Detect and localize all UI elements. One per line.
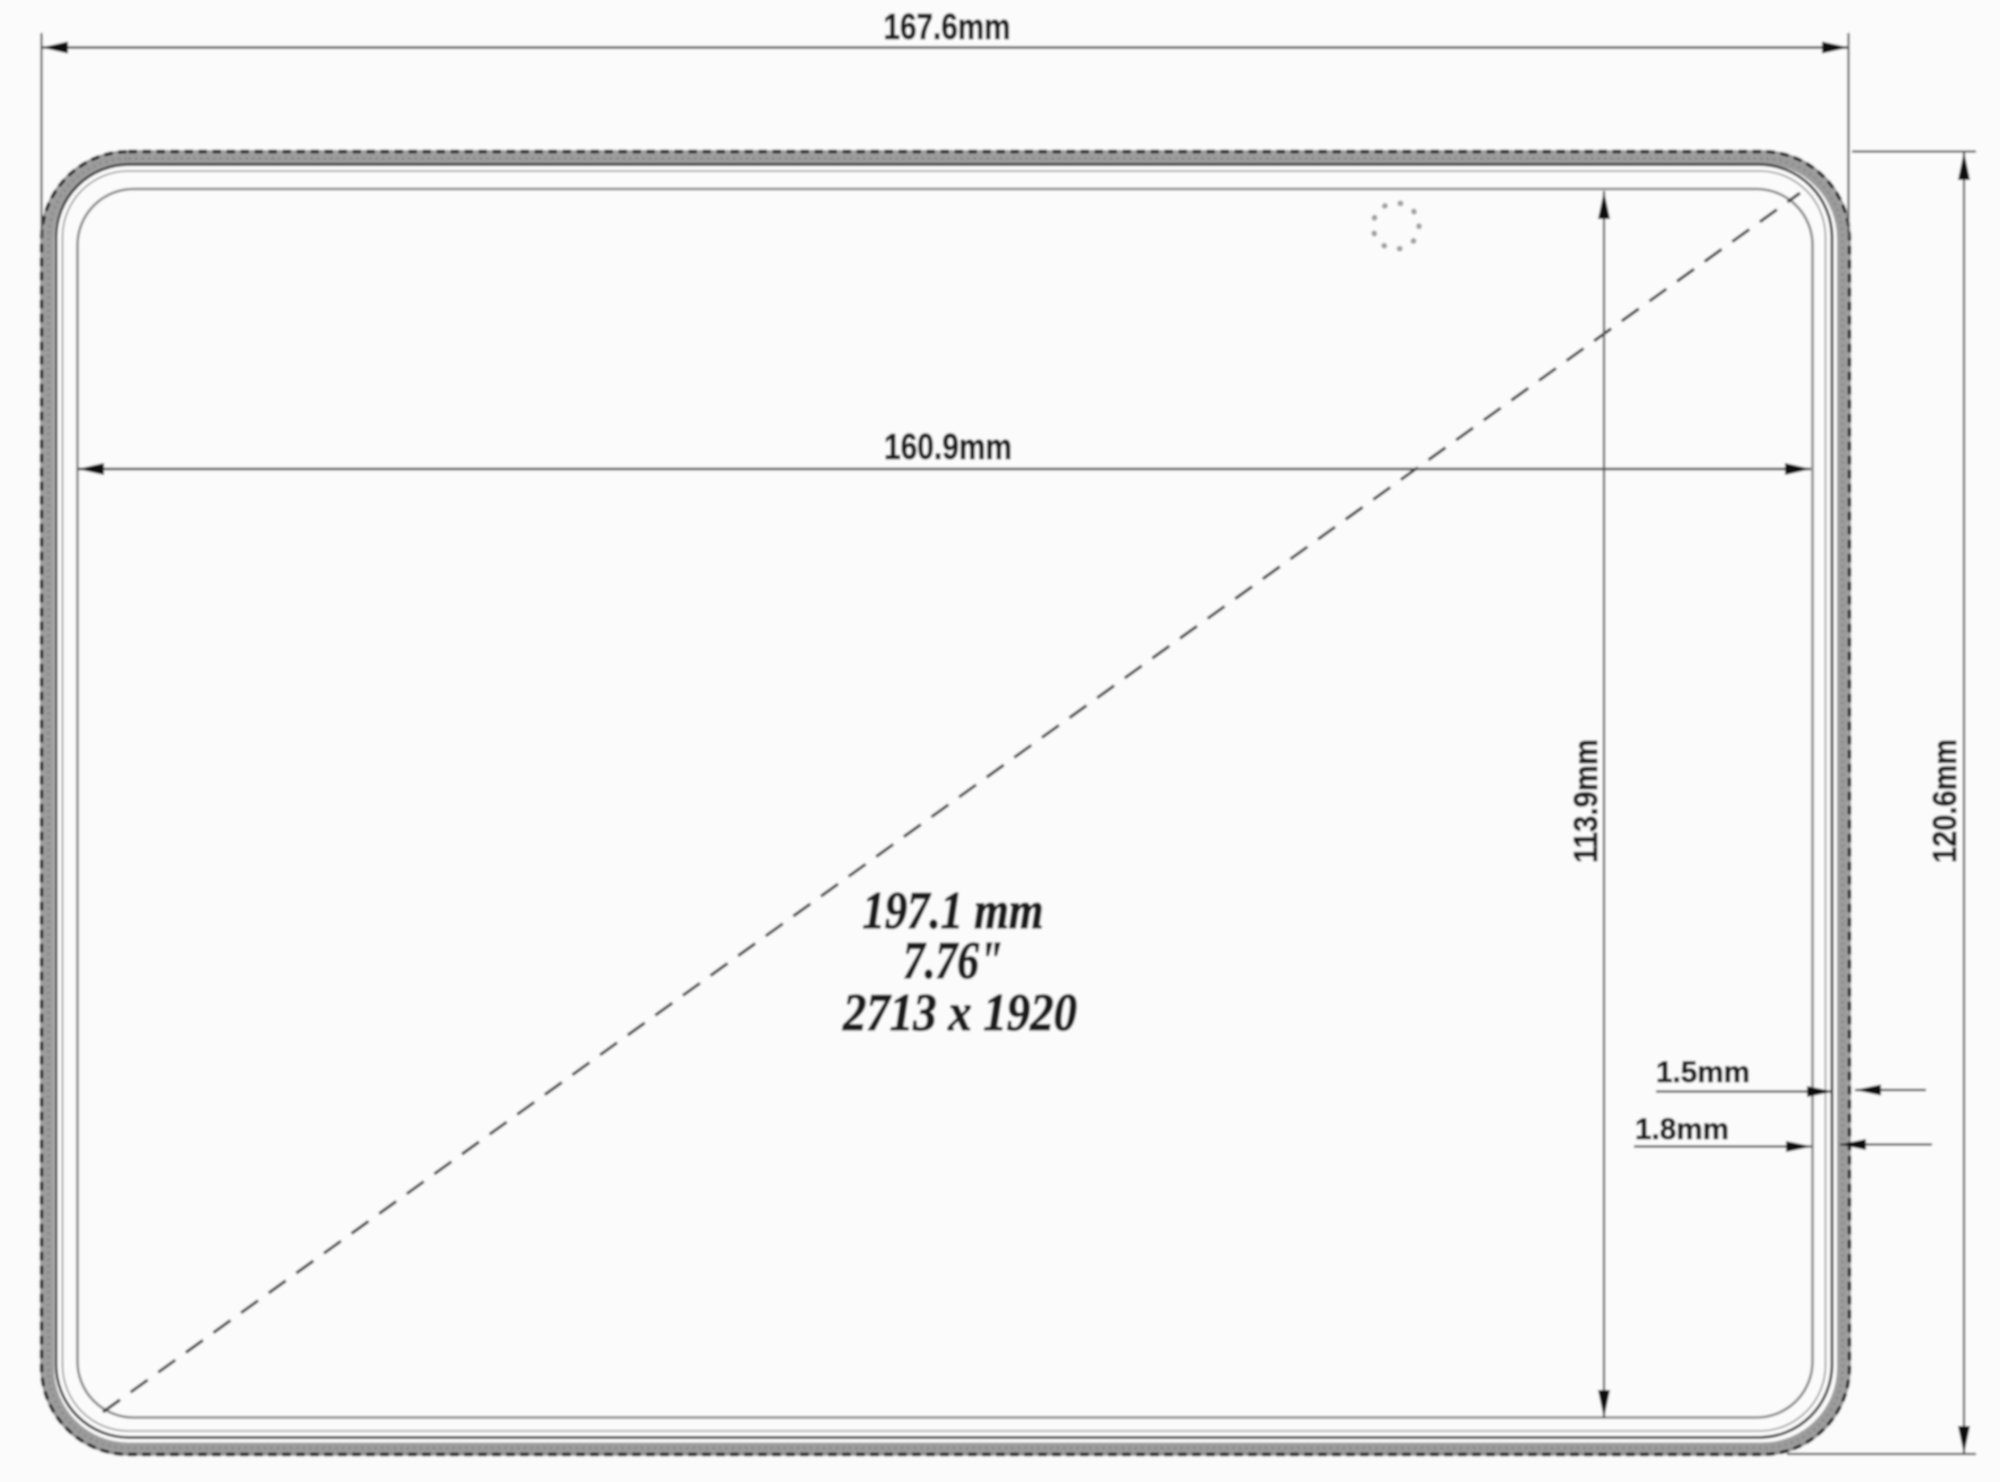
svg-text:167.6mm: 167.6mm bbox=[884, 6, 1011, 47]
svg-text:113.9mm: 113.9mm bbox=[1567, 739, 1604, 863]
svg-text:160.9mm: 160.9mm bbox=[884, 426, 1012, 467]
svg-text:1.5mm: 1.5mm bbox=[1656, 1056, 1750, 1089]
svg-text:2713 x 1920: 2713 x 1920 bbox=[842, 984, 1077, 1042]
svg-text:120.6mm: 120.6mm bbox=[1926, 739, 1963, 863]
svg-text:1.8mm: 1.8mm bbox=[1635, 1113, 1729, 1146]
svg-text:7.76": 7.76" bbox=[903, 932, 1003, 990]
